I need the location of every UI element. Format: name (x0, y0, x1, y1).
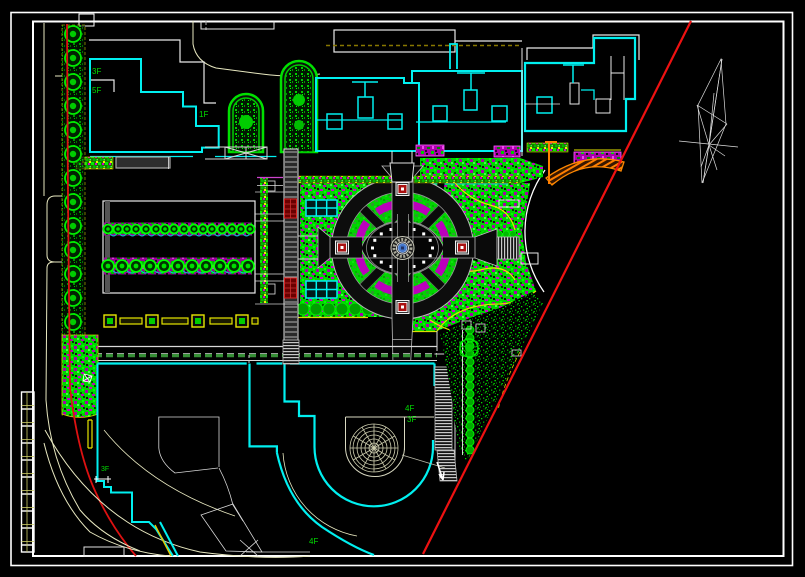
svg-text:1F: 1F (199, 110, 208, 119)
svg-text:3F: 3F (407, 415, 416, 424)
svg-text:4F: 4F (309, 537, 318, 546)
svg-text:4F: 4F (405, 404, 414, 413)
svg-text:3F: 3F (101, 466, 109, 473)
svg-text:3F: 3F (92, 67, 101, 76)
svg-text:5F: 5F (92, 86, 101, 95)
